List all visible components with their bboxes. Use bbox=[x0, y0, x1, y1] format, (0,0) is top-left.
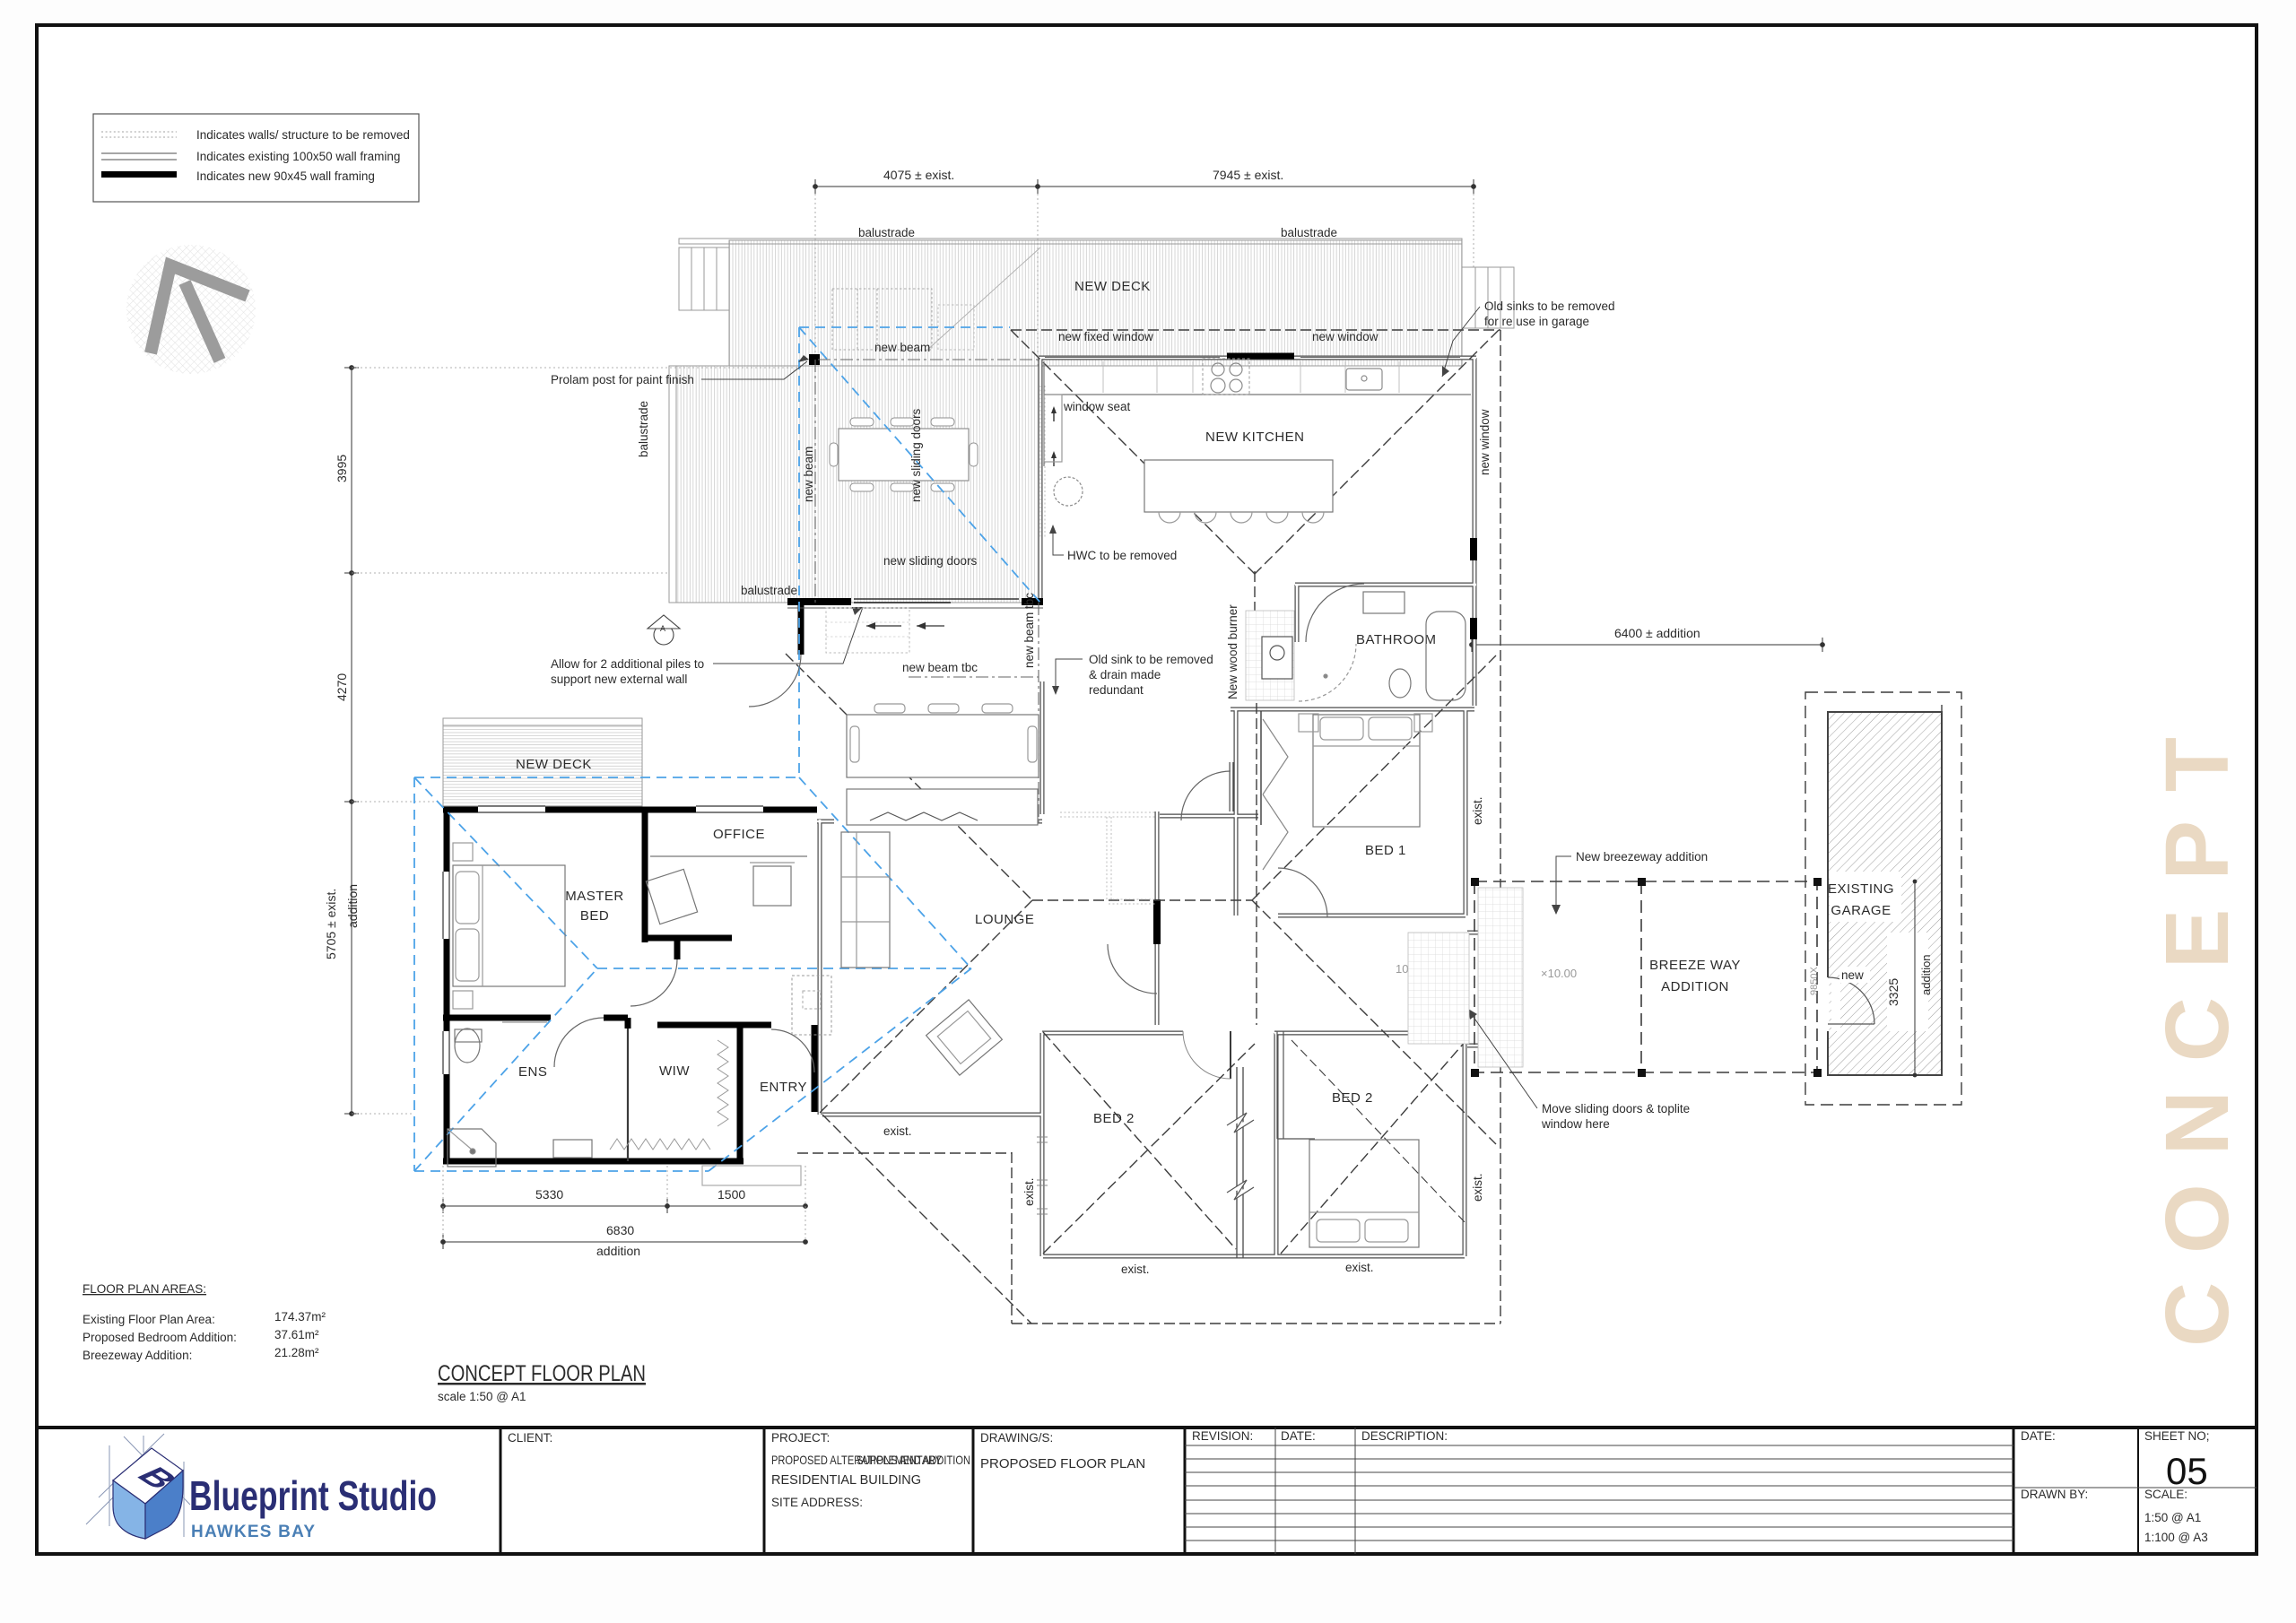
svg-text:exist.: exist. bbox=[1022, 1177, 1036, 1206]
svg-text:DESCRIPTION:: DESCRIPTION: bbox=[1361, 1429, 1448, 1443]
svg-text:SITE ADDRESS:: SITE ADDRESS: bbox=[771, 1496, 863, 1509]
svg-text:9850X: 9850X bbox=[1809, 967, 1820, 995]
svg-text:new beam: new beam bbox=[874, 341, 930, 354]
svg-text:Old sinks to be removed: Old sinks to be removed bbox=[1484, 299, 1615, 313]
svg-text:×10.00: ×10.00 bbox=[1541, 967, 1577, 980]
svg-text:Indicates existing 100x50 wall: Indicates existing 100x50 wall framing bbox=[196, 150, 400, 163]
svg-text:174.37m²: 174.37m² bbox=[274, 1310, 326, 1324]
svg-text:SHEET NO;: SHEET NO; bbox=[2144, 1429, 2210, 1443]
svg-text:4075 ± exist.: 4075 ± exist. bbox=[883, 168, 954, 182]
svg-text:New wood burner: New wood burner bbox=[1226, 604, 1239, 699]
svg-text:balustrade: balustrade bbox=[637, 401, 650, 457]
svg-text:NEW DECK: NEW DECK bbox=[1074, 279, 1151, 294]
svg-text:DATE:: DATE: bbox=[1281, 1429, 1316, 1443]
svg-text:PROJECT:: PROJECT: bbox=[771, 1431, 830, 1445]
svg-text:ENS: ENS bbox=[518, 1064, 547, 1080]
svg-text:6400 ± addition: 6400 ± addition bbox=[1614, 626, 1700, 640]
svg-text:redundant: redundant bbox=[1089, 683, 1144, 697]
svg-text:ADDITION: ADDITION bbox=[1661, 979, 1729, 994]
svg-text:05: 05 bbox=[2166, 1450, 2208, 1492]
svg-text:new beam tbc: new beam tbc bbox=[1022, 593, 1036, 668]
svg-text:BED 2: BED 2 bbox=[1332, 1090, 1373, 1106]
svg-text:balustrade: balustrade bbox=[1281, 226, 1337, 239]
svg-text:5705 ± exist.: 5705 ± exist. bbox=[324, 889, 338, 959]
svg-text:new beam: new beam bbox=[802, 447, 815, 502]
svg-text:new sliding doors: new sliding doors bbox=[883, 554, 978, 568]
svg-text:1500: 1500 bbox=[717, 1187, 745, 1202]
svg-text:new window: new window bbox=[1478, 409, 1492, 475]
svg-text:NEW DECK: NEW DECK bbox=[516, 757, 592, 772]
svg-text:balustrade: balustrade bbox=[741, 584, 797, 597]
svg-text:new: new bbox=[1841, 968, 1864, 982]
svg-text:EXISTING: EXISTING bbox=[1828, 881, 1894, 897]
svg-text:new sliding doors: new sliding doors bbox=[909, 408, 923, 502]
svg-text:GARAGE: GARAGE bbox=[1831, 903, 1891, 918]
svg-text:REVISION:: REVISION: bbox=[1192, 1429, 1253, 1443]
svg-text:RESIDENTIAL BUILDING: RESIDENTIAL BUILDING bbox=[771, 1473, 921, 1488]
svg-text:exist.: exist. bbox=[1345, 1261, 1374, 1274]
svg-text:CLIENT:: CLIENT: bbox=[508, 1431, 552, 1445]
svg-text:WIW: WIW bbox=[659, 1063, 690, 1079]
svg-text:new beam tbc: new beam tbc bbox=[902, 661, 978, 674]
svg-text:HAWKES BAY: HAWKES BAY bbox=[191, 1523, 315, 1541]
svg-text:for re use in garage: for re use in garage bbox=[1484, 315, 1589, 328]
svg-text:Existing Floor Plan Area:: Existing Floor Plan Area: bbox=[83, 1313, 215, 1326]
svg-text:1:100 @ A3: 1:100 @ A3 bbox=[2144, 1531, 2208, 1544]
svg-text:Move sliding doors & toplite: Move sliding doors & toplite bbox=[1542, 1102, 1690, 1115]
svg-text:CONCEPT: CONCEPT bbox=[2147, 719, 2248, 1347]
svg-text:37.61m²: 37.61m² bbox=[274, 1328, 319, 1341]
svg-text:Indicates walls/ structure to: Indicates walls/ structure to be removed bbox=[196, 128, 410, 142]
svg-text:New breezeway addition: New breezeway addition bbox=[1576, 850, 1708, 864]
svg-text:NEW KITCHEN: NEW KITCHEN bbox=[1205, 430, 1305, 445]
svg-text:CONCEPT FLOOR PLAN: CONCEPT FLOOR PLAN bbox=[438, 1361, 646, 1386]
svg-text:balustrade: balustrade bbox=[858, 226, 915, 239]
svg-text:SUPPLEMENTARY: SUPPLEMENTARY bbox=[857, 1453, 943, 1467]
svg-text:BREEZE WAY: BREEZE WAY bbox=[1649, 958, 1741, 973]
svg-text:BED 2: BED 2 bbox=[1093, 1111, 1135, 1126]
svg-text:& drain made: & drain made bbox=[1089, 668, 1161, 681]
svg-text:exist.: exist. bbox=[1121, 1263, 1150, 1276]
svg-text:OFFICE: OFFICE bbox=[713, 827, 765, 842]
svg-text:exist.: exist. bbox=[1471, 796, 1484, 825]
svg-text:addition: addition bbox=[596, 1244, 640, 1258]
svg-text:21.28m²: 21.28m² bbox=[274, 1346, 319, 1359]
svg-text:Prolam post for paint finish: Prolam post for paint finish bbox=[551, 373, 694, 386]
svg-text:new window: new window bbox=[1312, 330, 1378, 343]
svg-text:MASTER: MASTER bbox=[565, 889, 624, 904]
svg-text:support new external wall: support new external wall bbox=[551, 673, 687, 686]
svg-text:Old sink to be removed: Old sink to be removed bbox=[1089, 653, 1213, 666]
svg-text:FLOOR PLAN AREAS:: FLOOR PLAN AREAS: bbox=[83, 1282, 206, 1296]
svg-text:scale 1:50 @ A1: scale 1:50 @ A1 bbox=[438, 1390, 526, 1403]
svg-text:LOUNGE: LOUNGE bbox=[975, 912, 1034, 927]
svg-text:Breezeway Addition:: Breezeway Addition: bbox=[83, 1349, 192, 1362]
svg-text:DATE:: DATE: bbox=[2021, 1429, 2056, 1443]
svg-text:window here: window here bbox=[1541, 1117, 1610, 1131]
svg-text:exist.: exist. bbox=[883, 1124, 912, 1138]
svg-text:BED 1: BED 1 bbox=[1365, 843, 1406, 858]
svg-text:Indicates new 90x45 wall frami: Indicates new 90x45 wall framing bbox=[196, 169, 375, 183]
svg-text:BED: BED bbox=[580, 908, 609, 924]
svg-text:6830: 6830 bbox=[606, 1223, 634, 1237]
svg-text:DRAWING/S:: DRAWING/S: bbox=[980, 1431, 1053, 1445]
svg-text:A: A bbox=[660, 624, 665, 633]
svg-text:3325: 3325 bbox=[1886, 978, 1900, 1006]
svg-text:DRAWN BY:: DRAWN BY: bbox=[2021, 1488, 2088, 1501]
svg-text:Proposed Bedroom Addition:: Proposed Bedroom Addition: bbox=[83, 1331, 237, 1344]
svg-text:ENTRY: ENTRY bbox=[760, 1080, 807, 1095]
svg-text:SCALE:: SCALE: bbox=[2144, 1488, 2187, 1501]
svg-text:addition: addition bbox=[1919, 954, 1933, 995]
svg-text:addition: addition bbox=[345, 884, 360, 928]
svg-text:PROPOSED FLOOR PLAN: PROPOSED FLOOR PLAN bbox=[980, 1456, 1145, 1471]
svg-text:Blueprint Studio: Blueprint Studio bbox=[189, 1472, 437, 1519]
svg-text:new fixed window: new fixed window bbox=[1058, 330, 1153, 343]
svg-text:Allow for 2 additional piles t: Allow for 2 additional piles to bbox=[551, 657, 704, 671]
svg-text:3995: 3995 bbox=[335, 455, 349, 482]
svg-text:4270: 4270 bbox=[335, 673, 349, 701]
svg-text:7945 ± exist.: 7945 ± exist. bbox=[1213, 168, 1283, 182]
svg-text:5330: 5330 bbox=[535, 1187, 563, 1202]
svg-text:window seat: window seat bbox=[1063, 400, 1131, 413]
svg-text:exist.: exist. bbox=[1471, 1173, 1484, 1202]
svg-text:1:50 @ A1: 1:50 @ A1 bbox=[2144, 1511, 2201, 1524]
svg-text:BATHROOM: BATHROOM bbox=[1356, 632, 1437, 647]
svg-text:HWC to be removed: HWC to be removed bbox=[1067, 549, 1177, 562]
